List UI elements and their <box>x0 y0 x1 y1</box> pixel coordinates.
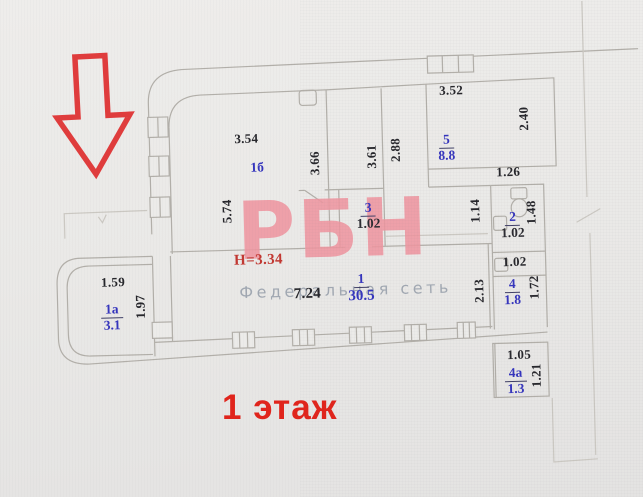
dimension-label: 3.54 <box>234 131 258 148</box>
floor-plan-photo: РБН Федеральная сеть Н=3.34 3.543.523.66… <box>0 0 643 497</box>
room-labels: 1а3.11б130.521.0231.0241.84а1.358.8 <box>0 0 637 8</box>
ceiling-height-note: Н=3.34 <box>234 251 283 269</box>
dimension-label: 2.40 <box>516 106 533 130</box>
dimension-label: 1.72 <box>526 275 543 299</box>
room-number: 1а <box>101 302 123 318</box>
room-number: 3 <box>361 201 376 217</box>
dimension-label: 3.52 <box>439 82 463 99</box>
room-area-value: 1.02 <box>357 216 381 231</box>
down-arrow-icon <box>47 48 146 185</box>
room-area-value: 1.3 <box>505 381 527 396</box>
room-label: 41.8 <box>504 275 522 308</box>
dimension-labels: 3.543.523.663.612.882.405.741.261.141.48… <box>0 0 637 8</box>
room-label: 1а3.1 <box>101 300 123 333</box>
dimension-label: 1.21 <box>528 363 545 387</box>
room-number: 5 <box>439 132 454 148</box>
dimension-label: 3.66 <box>307 151 324 175</box>
room-number: 4а <box>505 366 527 382</box>
dimension-label: 2.13 <box>471 279 488 303</box>
dimension-label: 7.24 <box>293 285 321 303</box>
room-label: 21.02 <box>500 208 524 241</box>
room-label: 1б <box>246 158 268 176</box>
room-area-value: 3.1 <box>101 318 123 333</box>
dimension-label: 1.02 <box>502 254 526 271</box>
room-label: 31.02 <box>356 198 380 231</box>
room-label: 58.8 <box>438 130 456 163</box>
dimension-label: 3.61 <box>364 144 381 168</box>
room-area-value: 1.02 <box>501 225 525 240</box>
dimension-label: 1.59 <box>101 274 125 291</box>
room-label: 4а1.3 <box>505 364 527 397</box>
dimension-label: 1.26 <box>496 164 520 181</box>
room-number: 1б <box>246 160 268 175</box>
dimension-label: 1.48 <box>523 200 540 224</box>
dimension-label: 1.97 <box>132 295 149 319</box>
floor-title: 1 этаж <box>222 388 337 428</box>
room-number: 2 <box>505 210 520 226</box>
dimension-label: 2.88 <box>387 138 404 162</box>
room-label: 130.5 <box>348 270 375 305</box>
room-area-value: 30.5 <box>348 287 375 304</box>
room-number: 4 <box>505 277 520 293</box>
dimension-label: 1.05 <box>507 347 531 364</box>
dimension-label: 5.74 <box>219 199 236 223</box>
room-number: 1 <box>353 272 368 288</box>
room-area-value: 8.8 <box>438 148 455 163</box>
dimension-label: 1.14 <box>467 199 484 223</box>
room-area-value: 1.8 <box>504 293 521 308</box>
